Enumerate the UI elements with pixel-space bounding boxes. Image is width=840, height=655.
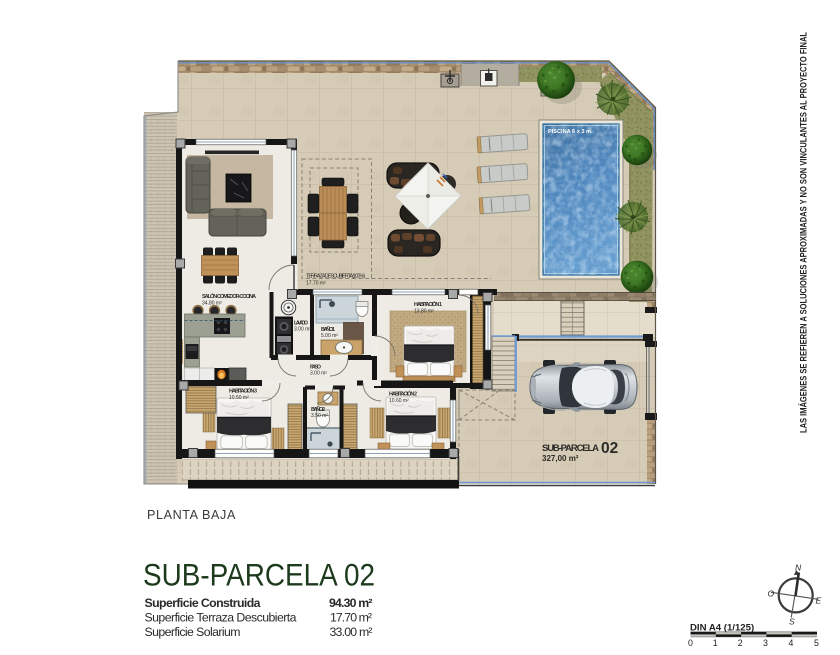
svg-text:1: 1 xyxy=(713,638,718,648)
svg-text:3.50 m²: 3.50 m² xyxy=(311,413,328,419)
svg-text:0: 0 xyxy=(688,638,693,648)
svg-text:327,00 m²: 327,00 m² xyxy=(542,454,579,463)
svg-text:17.70 m²: 17.70 m² xyxy=(306,281,326,287)
svg-text:10.50 m²: 10.50 m² xyxy=(229,395,249,401)
svg-text:TERRAZA DESCUBIERTA (100%): TERRAZA DESCUBIERTA (100%) xyxy=(306,274,365,280)
svg-text:13.80 m²: 13.80 m² xyxy=(414,309,434,315)
svg-text:34.80 m²: 34.80 m² xyxy=(202,301,222,307)
svg-text:SUB-PARCELA 02: SUB-PARCELA 02 xyxy=(143,557,375,593)
svg-text:PISCINA 6 x 3 m.: PISCINA 6 x 3 m. xyxy=(548,129,593,135)
svg-text:SUB-PARCELA: SUB-PARCELA xyxy=(542,443,599,454)
svg-text:17.70 m²: 17.70 m² xyxy=(330,611,372,625)
svg-text:LAS IMÁGENES SE REFIEREN A SOL: LAS IMÁGENES SE REFIEREN A SOLUCIONES AP… xyxy=(799,32,809,433)
svg-text:HABITACIÓN 2: HABITACIÓN 2 xyxy=(389,390,417,398)
svg-text:Superficie Terraza Descubierta: Superficie Terraza Descubierta xyxy=(145,611,297,625)
svg-text:3.00 m²: 3.00 m² xyxy=(310,371,327,377)
svg-text:33.00 m²: 33.00 m² xyxy=(330,625,373,639)
svg-text:E: E xyxy=(816,596,822,606)
svg-text:SALÓN-COMEDOR-COCINA: SALÓN-COMEDOR-COCINA xyxy=(202,292,256,300)
svg-text:HABITACIÓN 1: HABITACIÓN 1 xyxy=(414,300,442,308)
svg-text:O: O xyxy=(768,589,775,599)
svg-text:10.60 m²: 10.60 m² xyxy=(389,398,409,404)
svg-text:Superficie Solarium: Superficie Solarium xyxy=(145,625,241,639)
svg-text:94.30 m²: 94.30 m² xyxy=(329,596,373,610)
svg-text:3: 3 xyxy=(763,638,768,648)
svg-text:5.00 m²: 5.00 m² xyxy=(321,333,338,339)
svg-text:PLANTA BAJA: PLANTA BAJA xyxy=(147,508,236,522)
svg-text:02: 02 xyxy=(601,440,618,457)
svg-text:BAÑO 2: BAÑO 2 xyxy=(311,406,325,413)
svg-text:Superficie Construida: Superficie Construida xyxy=(145,596,261,610)
svg-text:4: 4 xyxy=(789,638,794,648)
svg-text:HABITACIÓN 3: HABITACIÓN 3 xyxy=(229,387,257,395)
svg-text:2: 2 xyxy=(738,638,743,648)
svg-text:S: S xyxy=(789,617,795,627)
svg-text:3.00 m²: 3.00 m² xyxy=(294,327,311,333)
svg-text:BAÑO 1: BAÑO 1 xyxy=(321,326,335,333)
svg-text:5: 5 xyxy=(814,638,819,648)
svg-text:N: N xyxy=(795,563,802,573)
